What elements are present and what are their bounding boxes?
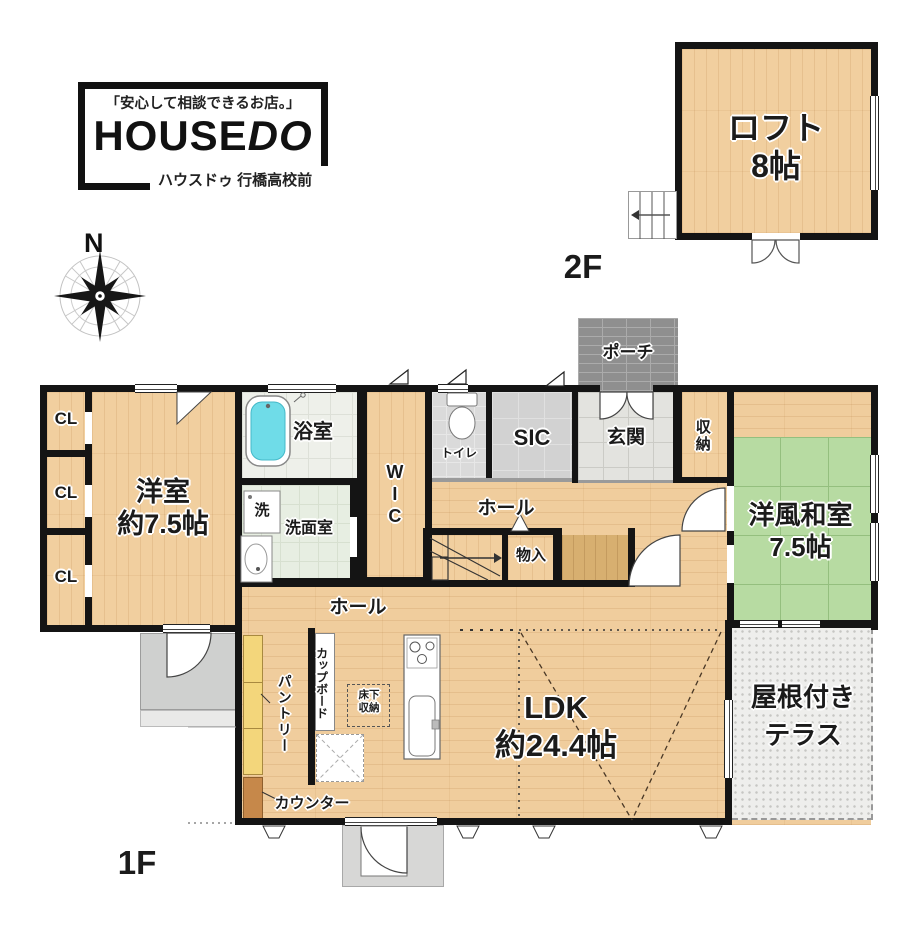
hall-upper-label: ホール <box>468 499 544 519</box>
cupboard-label: カップボード <box>315 636 328 730</box>
logo-word-house: HOUSE <box>93 112 247 159</box>
wall <box>486 392 492 478</box>
washroom-label: 洗面室 <box>272 521 346 538</box>
pantry-label: パントリー <box>277 666 292 762</box>
floor-plan-canvas: 「安心して相談できるお店。」 HOUSEDO ハウスドゥ 行橋高校前 N 2F … <box>0 0 920 929</box>
stairs-1f <box>430 535 502 580</box>
counter-label: カウンター <box>270 796 354 812</box>
closet-label-1: CL <box>44 410 88 428</box>
loft-door-gap <box>752 233 800 241</box>
terrace-label-1: 屋根付き <box>733 684 873 711</box>
counter-shelf <box>243 777 263 823</box>
wall <box>673 385 682 483</box>
toilet-label: トイレ <box>434 447 484 460</box>
cupboard-wall <box>308 628 315 785</box>
wall <box>357 385 367 584</box>
laundry-label: 洗 <box>247 503 277 519</box>
terrace-label-2: テラス <box>733 722 873 749</box>
wall <box>673 385 878 392</box>
wall <box>235 385 242 632</box>
ldk-terrace-window <box>724 700 733 778</box>
wall <box>380 385 578 392</box>
underfloor-label-2: 収納 <box>348 703 390 714</box>
entrance-label: 玄関 <box>587 428 665 448</box>
sic-label: SIC <box>497 426 567 449</box>
step-edge <box>432 478 572 482</box>
hall-closet-floor <box>562 535 628 580</box>
housedo-logo-text: HOUSEDO <box>88 112 318 160</box>
logo-word-do: DO <box>248 112 313 159</box>
ldk-name: LDK <box>486 692 626 725</box>
south-porch <box>342 825 444 887</box>
western-room-window <box>135 384 177 393</box>
wall <box>235 625 242 825</box>
rear-porch-step <box>140 710 237 727</box>
porch-label: ポーチ <box>588 344 668 362</box>
floor-label-1f: 1F <box>110 846 164 881</box>
wall <box>235 818 732 825</box>
entrance-step-edge <box>578 480 675 483</box>
wall <box>40 450 92 457</box>
wall <box>430 528 562 535</box>
wall <box>572 392 578 483</box>
wall <box>423 580 635 587</box>
ldk-size: 約24.4帖 <box>476 730 636 763</box>
wall <box>578 385 600 392</box>
loft-stairs <box>628 191 677 239</box>
loft-door-leaf <box>752 240 775 263</box>
bathroom-window <box>268 384 336 393</box>
floor-label-2f: 2F <box>556 250 610 285</box>
toilet-window <box>438 384 468 393</box>
japanese-room-name: 洋風和室 <box>728 502 873 529</box>
wall <box>628 528 635 587</box>
rear-door-gap <box>163 624 210 633</box>
wall <box>40 625 242 632</box>
logo-tagline: 「安心して相談できるお店。」 <box>88 92 318 113</box>
closet-label-3: CL <box>44 568 88 586</box>
small-storage-label: 物入 <box>506 548 556 564</box>
underfloor-label-1: 床下 <box>348 690 390 701</box>
wic-label: WIC <box>385 450 404 540</box>
loft-name-label: ロフト <box>706 112 846 146</box>
wall <box>653 385 675 392</box>
japanese-room-size: 7.5帖 <box>728 534 873 561</box>
hall-lower-label: ホール <box>320 598 396 618</box>
western-room-size: 約7.5帖 <box>93 510 233 538</box>
washroom-door-gap <box>350 517 357 557</box>
logo-store-name: ハウスドゥ 行橋高校前 <box>158 169 338 190</box>
pantry-shelf <box>243 635 263 775</box>
wall <box>235 578 357 587</box>
rear-porch <box>140 633 237 710</box>
wall <box>357 577 432 587</box>
closet-label-2: CL <box>44 484 88 502</box>
bathroom-label: 浴室 <box>273 422 353 443</box>
japanese-room-south-window <box>740 620 778 628</box>
japanese-room-south-window <box>782 620 820 628</box>
compass-north-label: N <box>84 228 104 259</box>
wall <box>673 477 734 483</box>
loft-size-label: 8帖 <box>706 150 846 184</box>
western-room-name: 洋室 <box>93 478 233 506</box>
toilet-floor <box>432 392 486 478</box>
kitchen-mat <box>316 734 364 782</box>
storage-label: 収納 <box>694 408 710 464</box>
ldk-sliding-door <box>345 817 437 826</box>
wall <box>40 528 92 535</box>
loft-door-leaf <box>776 240 799 263</box>
loft-window <box>870 96 879 190</box>
wall <box>242 478 358 485</box>
compass-rose <box>54 250 146 342</box>
